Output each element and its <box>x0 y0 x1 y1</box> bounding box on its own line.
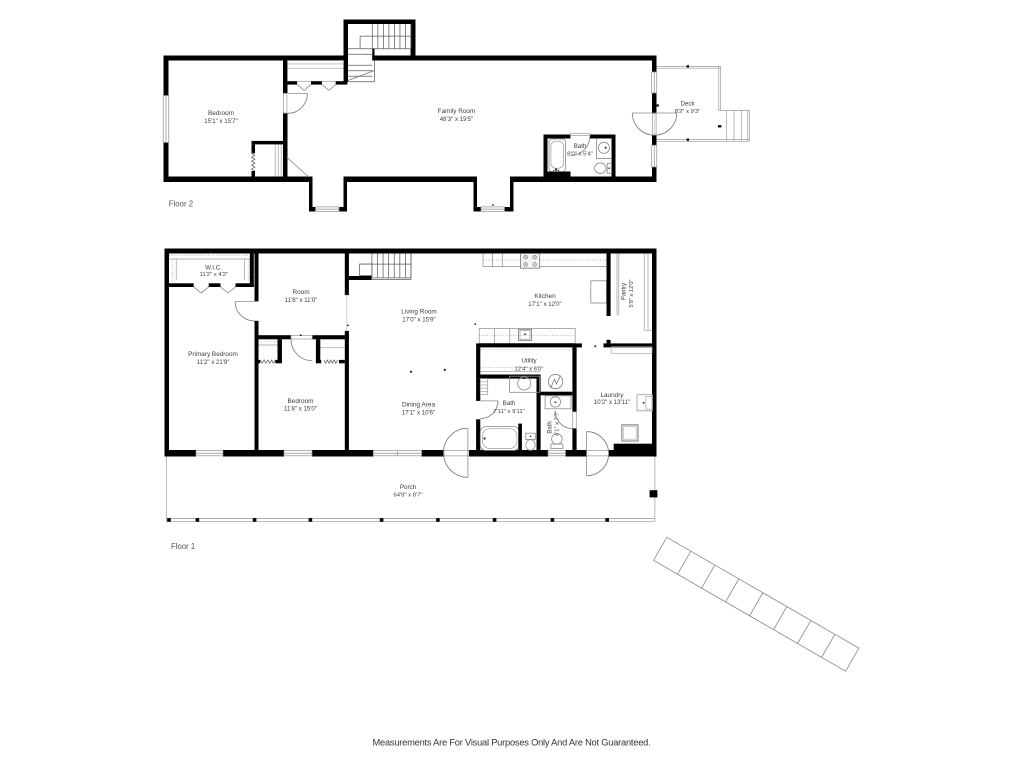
svg-text:8'0" x 5'4": 8'0" x 5'4" <box>567 151 593 157</box>
svg-text:Kitchen: Kitchen <box>534 293 556 300</box>
svg-text:Bath: Bath <box>548 421 554 433</box>
svg-text:17'1" x 10'6": 17'1" x 10'6" <box>402 409 435 416</box>
svg-text:Bath: Bath <box>503 400 516 407</box>
svg-text:17'0" x 15'9": 17'0" x 15'9" <box>402 316 435 323</box>
svg-text:Bath: Bath <box>574 143 587 150</box>
svg-text:48'3" x 19'5": 48'3" x 19'5" <box>440 116 473 123</box>
svg-text:7'11" x 9'11": 7'11" x 9'11" <box>493 409 524 415</box>
svg-text:Dining Area: Dining Area <box>402 401 435 408</box>
svg-text:Bedroom: Bedroom <box>288 398 314 405</box>
svg-text:10'2" x 13'11": 10'2" x 13'11" <box>594 399 630 406</box>
svg-text:11'2" x 21'9": 11'2" x 21'9" <box>197 359 230 366</box>
svg-text:4'1" x 7'7": 4'1" x 7'7" <box>554 411 560 436</box>
svg-text:Laundry: Laundry <box>600 392 624 399</box>
svg-text:15'1" x 15'7": 15'1" x 15'7" <box>204 118 237 125</box>
svg-text:12'4" x 6'0": 12'4" x 6'0" <box>514 366 543 372</box>
svg-text:5'8" x 12'0": 5'8" x 12'0" <box>629 279 635 307</box>
svg-text:W.I.C.: W.I.C. <box>205 264 222 271</box>
svg-text:64'8" x 8'7": 64'8" x 8'7" <box>393 492 422 498</box>
svg-text:Utility: Utility <box>521 357 537 364</box>
svg-text:Pantry: Pantry <box>622 283 628 300</box>
svg-text:Measurements Are For Visual Pu: Measurements Are For Visual Purposes Onl… <box>372 737 650 747</box>
svg-text:Primary Bedroom: Primary Bedroom <box>188 351 238 358</box>
svg-text:Porch: Porch <box>400 484 417 491</box>
svg-text:17'1" x 12'0": 17'1" x 12'0" <box>528 301 561 308</box>
svg-text:Family Room: Family Room <box>438 108 476 115</box>
svg-text:Living Room: Living Room <box>401 308 437 315</box>
svg-text:11'8" x 15'0": 11'8" x 15'0" <box>284 405 317 412</box>
svg-text:11'8" x 11'0": 11'8" x 11'0" <box>285 297 318 304</box>
svg-text:Floor 1: Floor 1 <box>171 542 195 551</box>
svg-text:Room: Room <box>292 289 309 296</box>
svg-text:Deck: Deck <box>680 100 695 107</box>
svg-text:Bedroom: Bedroom <box>208 110 234 117</box>
svg-text:8'2" x 9'3": 8'2" x 9'3" <box>675 109 701 115</box>
svg-text:11'2" x 4'2": 11'2" x 4'2" <box>200 272 229 278</box>
svg-text:Floor 2: Floor 2 <box>169 200 193 209</box>
